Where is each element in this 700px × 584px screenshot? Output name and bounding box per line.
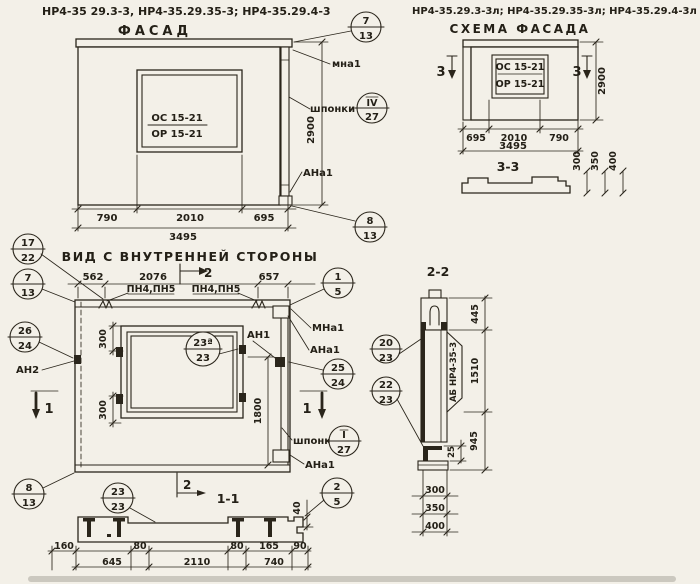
callout-den: 13: [21, 288, 35, 299]
callout-den: 27: [365, 112, 379, 123]
dim-350: 350: [590, 151, 601, 171]
callout-num: 7: [363, 16, 370, 27]
dim-80a: 80: [133, 541, 147, 552]
callout-den: 5: [335, 287, 342, 298]
dim-790: 790: [97, 213, 118, 224]
facade-title: ФАСАД: [118, 24, 192, 39]
callout-num: 26: [18, 326, 32, 337]
section-1-marker-left: 1: [31, 391, 58, 419]
section-2-2-step-dimensions: 300 350 400: [412, 470, 458, 536]
facade-label-ana1: АНа1: [303, 168, 333, 179]
dim-25: 25: [447, 446, 457, 458]
label-ab-hr4-35-3: АБ НР4-35-3: [449, 342, 459, 402]
profile-top-tab: [429, 290, 441, 298]
section-2-2-title: 2-2: [427, 264, 450, 279]
dim-400: 400: [608, 151, 619, 171]
section-1-1-dimensions: 160 80 80 165 90 645 2110 740: [48, 541, 311, 570]
dim-350: 350: [425, 503, 445, 514]
scheme-lintel: [463, 40, 578, 47]
facade-lintel: [76, 39, 292, 47]
callout-num: IV: [367, 98, 379, 109]
section-mark-1: 1: [302, 402, 311, 417]
dim-80b: 80: [230, 541, 244, 552]
facade-label-shponki: шпонки: [310, 104, 355, 115]
pn-label-1: ПН4,ПН5: [127, 284, 176, 295]
dim-300b: 300: [98, 400, 109, 420]
dim-300a: 300: [98, 329, 109, 349]
callout-den: 23: [196, 353, 210, 364]
dim-1510: 1510: [470, 357, 481, 384]
scheme-window-mark-top: ОС 15-21: [496, 62, 545, 73]
dim-300: 300: [425, 485, 445, 496]
profile-label-band: АБ НР4-35-3: [447, 332, 462, 412]
callout-num: 1: [335, 272, 342, 283]
dim-1800: 1800: [253, 397, 264, 424]
callout-num: I: [342, 430, 346, 441]
facade-height-dimension: 2900: [293, 39, 328, 208]
callout-facade-bottom: 8 13: [353, 212, 387, 242]
callout-num: 20: [379, 338, 393, 349]
inner-arrow-bottom: 2: [177, 473, 206, 497]
arrow-label-2: 2: [204, 266, 212, 280]
dim-695: 695: [466, 133, 486, 144]
callout-den: 23: [379, 353, 393, 364]
scheme-window-mark-bottom: ОР 15-21: [496, 79, 545, 90]
callout-den: 13: [363, 231, 377, 242]
dim-645: 645: [102, 557, 122, 568]
dim-40-label: 40: [292, 501, 303, 515]
label-an1: АН1: [247, 330, 270, 341]
facade-view: НР4-35 29.3-3, НР4-35.29.35-3; НР4-35.29…: [42, 5, 389, 243]
callout-7-13-left: 7 13: [11, 269, 75, 302]
section-mark-3: 3: [572, 65, 581, 80]
callout-den: 27: [337, 445, 351, 456]
callout-den: 24: [331, 378, 345, 389]
facade-leaders: мна1 шпонки АНа1: [289, 31, 361, 221]
scheme-section-marker-left: 3: [436, 56, 457, 80]
section-mark-3: 3: [436, 65, 445, 80]
callout-den: 13: [359, 31, 373, 42]
dim-562: 562: [83, 272, 104, 283]
dim-445: 445: [470, 304, 481, 324]
section-2-2: 2-2 АБ НР4-35-3 445 1510 945 25: [370, 264, 492, 536]
dim-945: 945: [469, 431, 480, 451]
section-1-1-title: 1-1: [217, 491, 240, 506]
dim-740: 740: [264, 557, 284, 568]
callout-23-23: 23 23: [101, 483, 155, 522]
scan-artifact-band: [28, 576, 676, 582]
profile-foot: [418, 446, 448, 470]
callout-26-24: 26 24: [8, 322, 81, 364]
callout-num: 2: [334, 482, 341, 493]
dim-165: 165: [259, 541, 279, 552]
section-3-3-profile: [462, 177, 570, 193]
dim-300: 300: [572, 151, 583, 171]
facade-label-mna1: мна1: [332, 59, 361, 70]
callout-facade-key: IV 27: [355, 93, 389, 123]
section-1-1: 2 1-1 40 23 23 2 5 160: [48, 473, 354, 570]
facade-window-mark-top: ОС 15-21: [151, 113, 202, 124]
dim-2010: 2010: [176, 213, 204, 224]
section-1-marker-right: 1: [300, 391, 327, 419]
dim-3495: 3495: [499, 141, 527, 152]
facade-window-mark-bottom: ОР 15-21: [151, 129, 202, 140]
an2-label: АН2: [16, 361, 74, 376]
dim-2900: 2900: [597, 67, 608, 95]
dim-90: 90: [293, 541, 307, 552]
callout-num: 22: [379, 380, 393, 391]
scheme-step-dimensions: 300 350 400: [572, 151, 626, 196]
dim-160: 160: [54, 541, 74, 552]
dim-3495: 3495: [169, 232, 197, 243]
drawing-sheet: НР4-35 29.3-3, НР4-35.29.35-3; НР4-35.29…: [0, 0, 700, 584]
arrow-label-2: 2: [183, 478, 191, 492]
callout-den: 23: [111, 502, 125, 513]
dim-695: 695: [254, 213, 275, 224]
callout-num: 23ª: [193, 338, 213, 349]
section-3-3-title: 3-3: [497, 159, 520, 174]
pn-label-2: ПН4,ПН5: [192, 284, 241, 295]
scheme-title: СХЕМА ФАСАДА: [450, 22, 591, 36]
callout-den: 23: [379, 395, 393, 406]
callout-den: 5: [334, 497, 341, 508]
callout-num: 25: [331, 363, 345, 374]
label-ana1-top: АНа1: [310, 345, 340, 356]
scheme-side-strip: [463, 47, 471, 120]
callout-den: 24: [18, 341, 32, 352]
callout-1-5: 1 5: [290, 268, 355, 305]
section-mark-1: 1: [44, 402, 53, 417]
callout-num: 8: [26, 483, 33, 494]
facade-scheme: НР4-35.29.3-3л; НР4-35.29.35-3л; НР4-35.…: [412, 6, 697, 196]
dim-400: 400: [425, 521, 445, 532]
callout-facade-top: 7 13: [348, 12, 384, 42]
scheme-height-dimension: 2900: [580, 39, 608, 123]
callout-2-5: 2 5: [305, 478, 354, 516]
dim-790: 790: [549, 133, 569, 144]
callout-num: 23: [111, 487, 125, 498]
dim-2076: 2076: [139, 272, 167, 283]
facade-keystrip: [279, 47, 292, 205]
label-an2: АН2: [16, 365, 39, 376]
facade-codes: НР4-35 29.3-3, НР4-35.29.35-3; НР4-35.29…: [42, 5, 331, 18]
inner-title: ВИД С ВНУТРЕННЕЙ СТОРОНЫ: [62, 249, 319, 264]
callout-22-23: 22 23: [370, 377, 423, 446]
callout-den: 13: [22, 498, 36, 509]
inner-arrow-top: 2: [180, 264, 212, 284]
callout-key-27: I 27: [327, 426, 361, 456]
callout-num: 17: [21, 238, 35, 249]
callout-20-23: 20 23: [370, 335, 421, 364]
callout-8-13-bottom: 8 13: [12, 473, 74, 509]
dim-657: 657: [259, 272, 280, 283]
scheme-codes: НР4-35.29.3-3л; НР4-35.29.35-3л; НР4-35.…: [412, 6, 697, 17]
dim-2900: 2900: [306, 116, 317, 144]
label-ana1-bottom: АНа1: [305, 460, 335, 471]
callout-25-24: 25 24: [321, 359, 355, 389]
callout-num: 8: [367, 216, 374, 227]
dim-2110: 2110: [184, 557, 211, 568]
label-mna1: МНа1: [312, 323, 344, 334]
profile-flange-fill: [421, 330, 425, 442]
callout-den: 22: [21, 253, 35, 264]
callout-num: 7: [25, 273, 32, 284]
inner-view: ВИД С ВНУТРЕННЕЙ СТОРОНЫ 562 2076 657 2 …: [8, 234, 361, 509]
